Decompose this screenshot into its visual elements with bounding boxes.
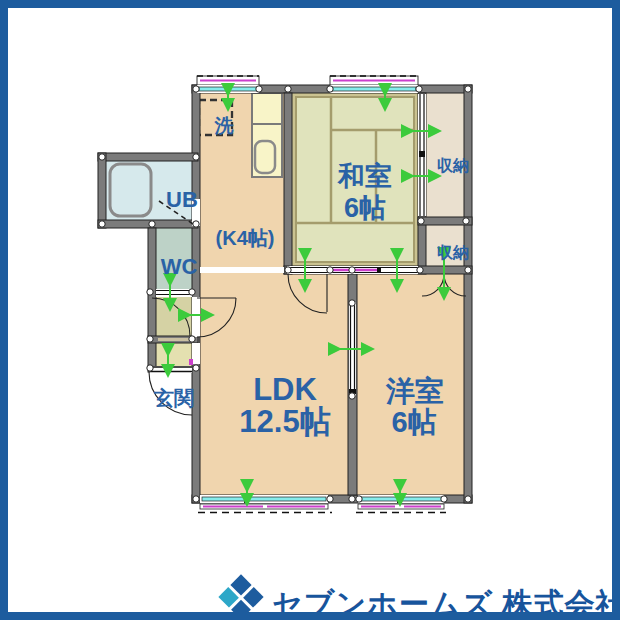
window-ldk (202, 497, 326, 501)
washitsu-size: 6帖 (344, 195, 386, 222)
laundry-label: 洗 (215, 116, 234, 135)
wall-right (464, 85, 472, 503)
wall-kitchen-washitsu (284, 93, 292, 274)
wall-annex-left (148, 228, 156, 372)
wall-ub-top (98, 153, 198, 161)
wc-label: WC (161, 256, 198, 278)
ldk-size: 12.5帖 (239, 406, 330, 437)
closet-upper-floor (426, 93, 464, 217)
wall-ub-left (98, 153, 106, 228)
closet-lower-label: 収納 (437, 245, 469, 261)
company-name: セブンホームズ 株式会社 (272, 584, 620, 620)
kitchen-label: (K4帖) (216, 228, 275, 248)
closet-upper-label: 収納 (437, 158, 469, 174)
wall-ub-bottom (98, 220, 198, 228)
genkan-floor (156, 343, 192, 367)
floorplan-page: 洗 UB WC (K4帖) 和室 6帖 収納 収納 LDK 12.5帖 洋室 6… (0, 0, 620, 620)
ub-label: UB (166, 189, 198, 211)
floorplan-drawing (8, 8, 612, 612)
washitsu-name: 和室 (338, 163, 392, 190)
genkan-step (158, 338, 190, 341)
genkan-label: 玄関 (154, 388, 194, 408)
kitchen-counter-icon (252, 93, 282, 177)
yoshitsu-name: 洋室 (386, 377, 444, 406)
window-washitsu (332, 87, 416, 91)
seven-homes-logo-icon (217, 573, 265, 620)
yoshitsu-size: 6帖 (391, 408, 436, 437)
ldk-name: LDK (253, 374, 317, 405)
